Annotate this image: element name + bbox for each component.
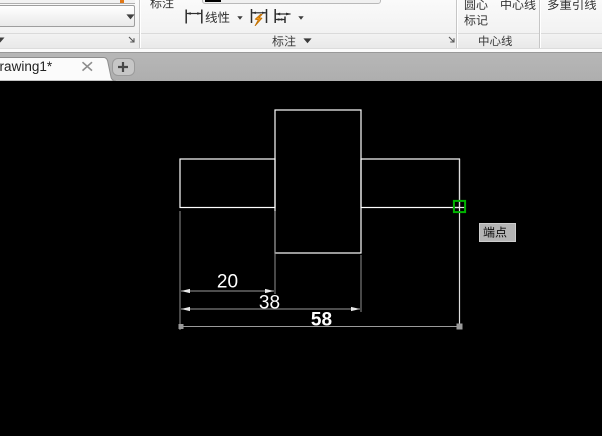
svg-text:20: 20 bbox=[217, 272, 238, 293]
svg-text:58: 58 bbox=[311, 310, 332, 331]
svg-text:38: 38 bbox=[259, 293, 280, 314]
